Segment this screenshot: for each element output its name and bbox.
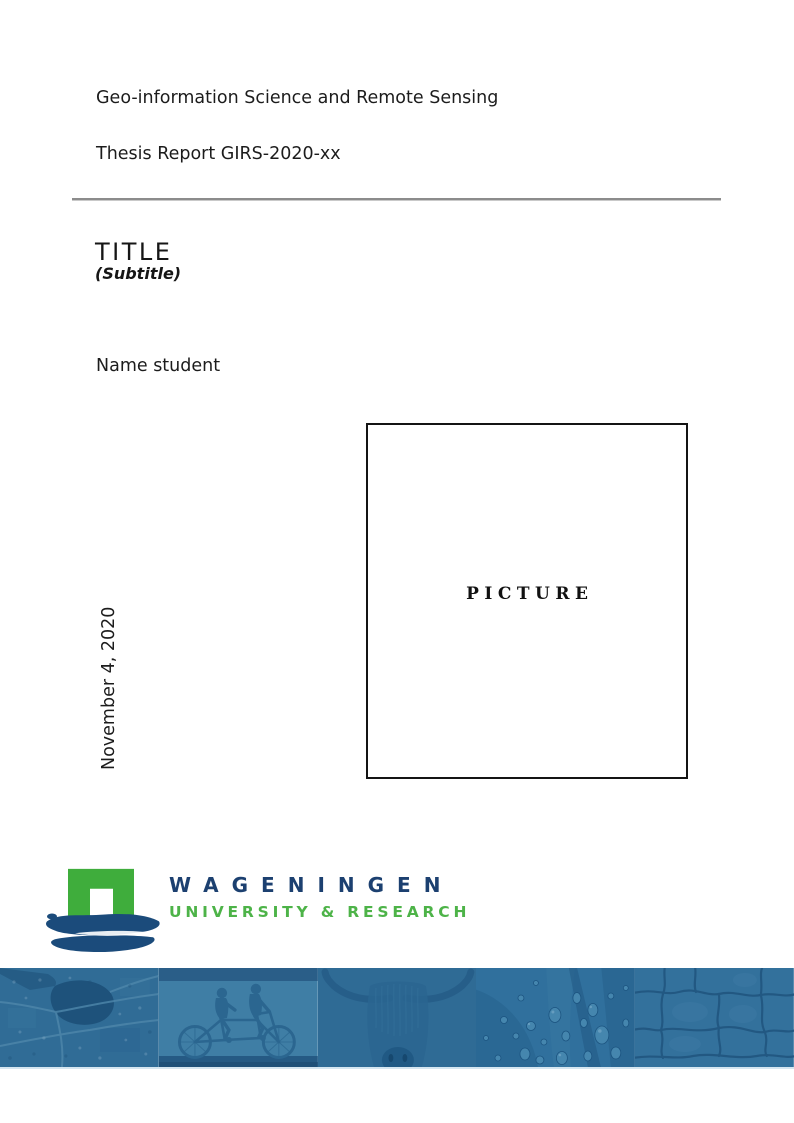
wur-logo-wordmark: WAGENINGEN [169, 873, 453, 897]
banner-photo-leaf-droplets-image [476, 968, 635, 1067]
thesis-cover-page: Geo-information Science and Remote Sensi… [0, 0, 794, 1123]
picture-placeholder-label: PICTURE [461, 584, 594, 604]
picture-placeholder-box: PICTURE [366, 423, 688, 779]
banner-photo-highland-cow-image [318, 968, 477, 1067]
date-vertical-text: November 4, 2020 [96, 596, 122, 770]
author-name: Name student [96, 355, 220, 377]
photo-banner [0, 968, 794, 1069]
divider-rule [72, 198, 721, 201]
banner-photo-cracked-earth-image [635, 968, 794, 1067]
banner-photo-tandem-cyclists-image [159, 968, 318, 1067]
page-title: TITLE [95, 238, 172, 266]
department-line: Geo-information Science and Remote Sensi… [96, 87, 498, 109]
page-subtitle: (Subtitle) [95, 264, 181, 284]
report-id-line: Thesis Report GIRS-2020-xx [96, 143, 341, 165]
banner-photo-aerial-map-image [0, 968, 159, 1067]
wur-logo-tagline: UNIVERSITY & RESEARCH [169, 903, 470, 921]
wur-logo-arch-icon [45, 860, 165, 964]
